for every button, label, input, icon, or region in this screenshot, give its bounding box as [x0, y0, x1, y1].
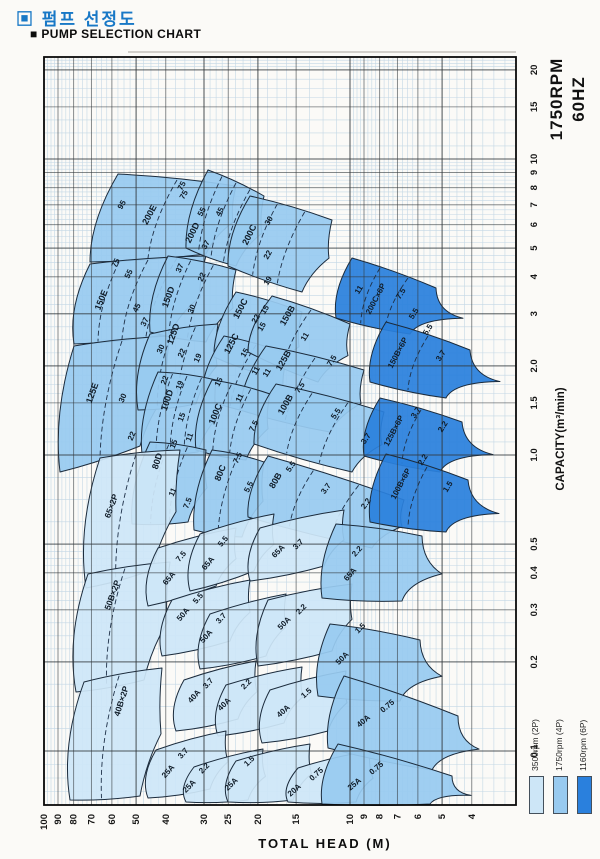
pump-selection-page: ▣ 펌프 선정도 ■ PUMP SELECTION CHART 200E9575… [0, 0, 600, 859]
hz-label: 60HZ [569, 39, 589, 159]
y-tick-label: 2.0 [529, 359, 540, 372]
legend-item: 1160rpm (6P) [576, 688, 592, 818]
y-tick-label: 1.0 [529, 448, 540, 461]
x-tick-label: 4 [467, 813, 478, 819]
x-tick-label: 30 [199, 814, 210, 825]
y-tick-label: 15 [529, 101, 540, 112]
x-tick-label: 15 [291, 813, 302, 824]
y-tick-label: 1.5 [529, 396, 540, 410]
legend: 3500rpm (2P)1750rpm (4P)1160rpm (6P) [528, 688, 600, 818]
x-tick-label: 9 [359, 814, 370, 819]
y-tick-label: 20 [529, 65, 540, 76]
y-tick-label: 6 [529, 222, 540, 227]
legend-item: 1750rpm (4P) [552, 688, 568, 818]
legend-label: 1750rpm (4P) [554, 689, 566, 771]
y-tick-label: 8 [529, 185, 540, 190]
x-tick-label: 40 [161, 814, 172, 825]
y-axis-title: CAPACITY(m³/min) [555, 354, 567, 524]
rpm-label: 1750RPM [547, 39, 567, 159]
pump-selection-chart: 200E9575150E75554537125E3022200D75554537… [0, 0, 600, 859]
y-tick-label: 3 [529, 311, 540, 316]
legend-item: 3500rpm (2P) [528, 688, 544, 818]
x-axis-title: TOTAL HEAD (M) [230, 836, 420, 851]
x-tick-label: 50 [131, 814, 142, 825]
y-tick-label: 0.3 [529, 603, 540, 616]
legend-swatch [577, 776, 592, 814]
x-tick-label: 70 [86, 814, 97, 825]
x-tick-label: 100 [39, 814, 50, 830]
x-tick-label: 5 [437, 813, 448, 819]
y-tick-label: 5 [529, 245, 540, 251]
x-tick-label: 8 [375, 814, 386, 819]
legend-label: 1160rpm (6P) [578, 689, 590, 771]
legend-label: 3500rpm (2P) [530, 689, 542, 771]
y-tick-label: 10 [529, 154, 540, 165]
x-tick-label: 60 [107, 814, 118, 825]
x-tick-label: 20 [253, 814, 264, 825]
x-tick-label: 10 [345, 814, 356, 825]
y-tick-label: 0.2 [529, 655, 540, 668]
x-tick-label: 6 [413, 814, 424, 819]
y-tick-label: 0.5 [529, 537, 540, 551]
y-tick-label: 4 [529, 273, 540, 279]
x-tick-label: 80 [69, 814, 80, 825]
legend-swatch [553, 776, 568, 814]
y-tick-label: 9 [529, 170, 540, 175]
legend-swatch [529, 776, 544, 814]
x-tick-label: 90 [53, 814, 64, 825]
x-tick-label: 7 [392, 814, 403, 819]
y-tick-label: 0.4 [529, 565, 540, 579]
x-tick-label: 25 [223, 813, 234, 824]
y-tick-label: 7 [529, 202, 540, 207]
